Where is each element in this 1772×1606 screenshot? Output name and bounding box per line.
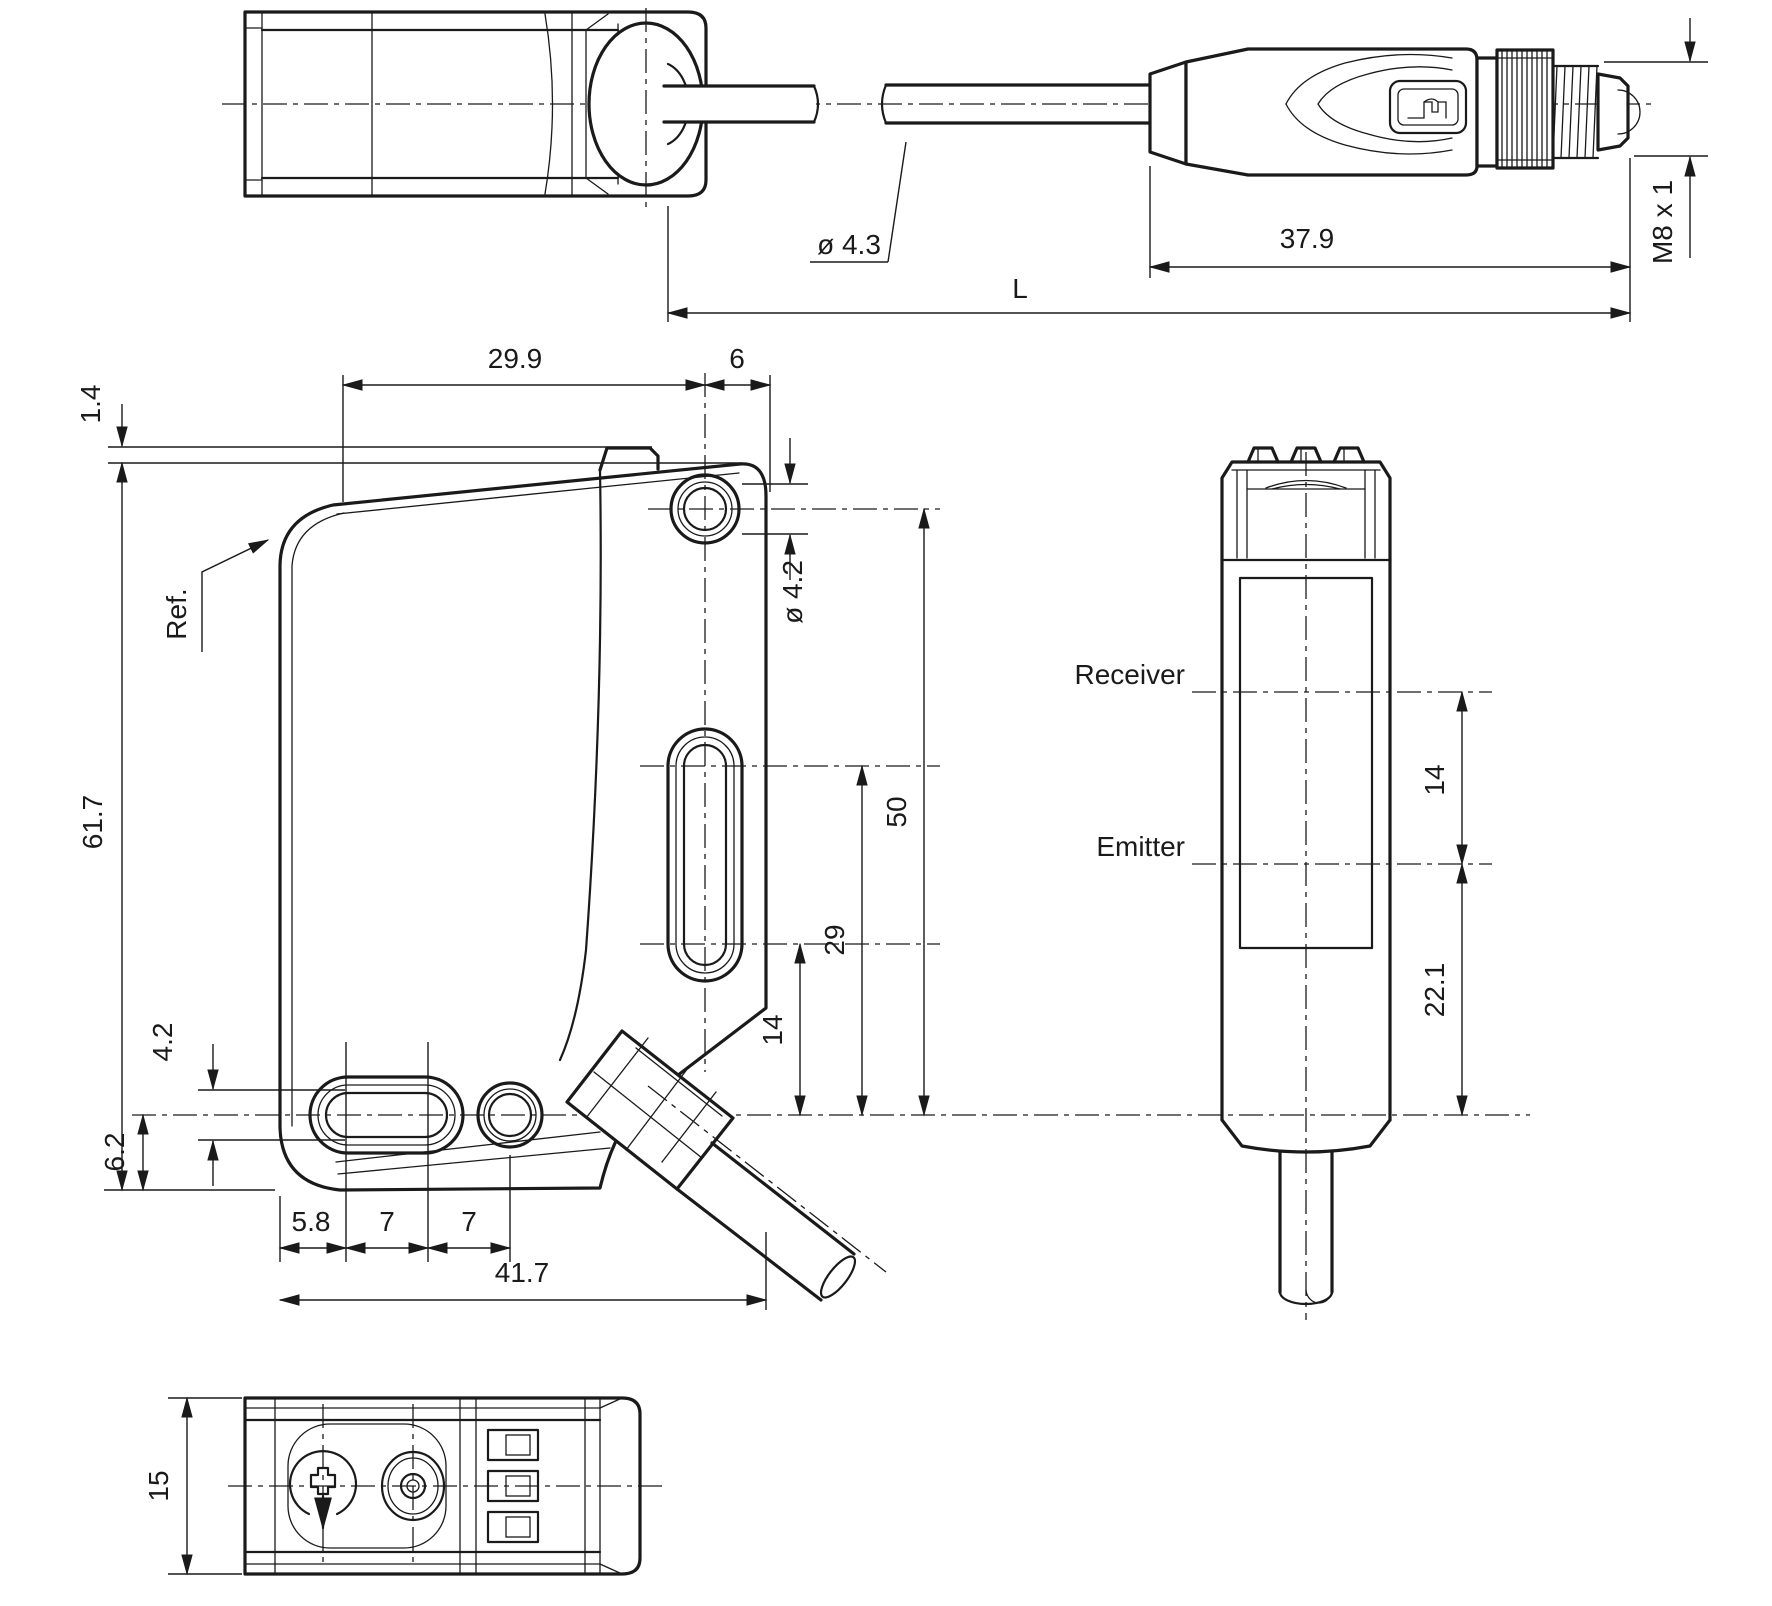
dim-slot-top-height: 29	[819, 924, 850, 955]
front-face-edge-curve	[560, 470, 601, 1060]
thread-section	[1553, 66, 1598, 158]
connector-tip	[1598, 74, 1628, 150]
dim-depth: 15	[143, 1470, 174, 1501]
dim-total-length: L	[1012, 273, 1028, 304]
front-left-inner-line	[292, 513, 344, 1126]
knurled-nut	[1497, 50, 1553, 168]
front-top-dimensions: 29.9 6	[343, 343, 770, 502]
front-right-dimensions: ø 4.2 14 29 50	[742, 438, 924, 1115]
label-emitter: Emitter	[1096, 831, 1185, 862]
dim-total-height: 61.7	[77, 795, 108, 850]
dim-thread-spec: M8 x 1	[1647, 180, 1678, 264]
ref-leader: Ref.	[161, 540, 268, 652]
dim-connector-length: 37.9	[1280, 223, 1335, 254]
sensor-dimensional-drawing: ø 4.3 37.9 L M8 x 1	[0, 0, 1772, 1606]
bottom-view-dimension: 15	[143, 1398, 242, 1574]
front-top-tab	[600, 448, 658, 470]
front-bottom-dimensions: 5.8 7 7 41.7	[280, 1042, 766, 1310]
side-view-sensor-face: Receiver Emitter 14 22.1	[1075, 448, 1492, 1320]
dim-slot-bottom-height: 14	[757, 1014, 788, 1045]
dim-chain-right: 7	[461, 1206, 477, 1237]
front-view-sensor-profile: Ref. 29.9 6 1.4 61.7 4.2	[75, 343, 1530, 1310]
dim-emitter-bottom: 22.1	[1419, 963, 1450, 1018]
dim-tab-height: 1.4	[75, 385, 106, 424]
dim-hole-edge-offset: 6	[729, 343, 745, 374]
side-view-dimensions: 14 22.1	[1419, 692, 1462, 1115]
dim-chain-left: 5.8	[292, 1206, 331, 1237]
dim-cable-diameter: ø 4.3	[817, 229, 881, 260]
label-reference: Ref.	[161, 588, 192, 639]
dim-chain-mid: 7	[379, 1206, 395, 1237]
cable-stub	[664, 86, 818, 122]
front-cable-boss	[567, 1031, 886, 1302]
connector-neck	[1477, 58, 1497, 166]
dim-total-width: 41.7	[495, 1257, 550, 1288]
front-top-inner-line	[337, 473, 739, 514]
front-body-outline	[280, 464, 766, 1190]
top-view-sensor-cable-assembly: ø 4.3 37.9 L M8 x 1	[222, 8, 1708, 322]
dim-top-hole-offset: 29.9	[488, 343, 543, 374]
m8-connector	[1150, 49, 1640, 175]
dim-hole-diameter: ø 4.2	[777, 560, 808, 624]
bottom-view-control-face: 15	[143, 1398, 668, 1574]
dimensional-drawing-page: ø 4.3 37.9 L M8 x 1	[0, 0, 1772, 1606]
label-receiver: Receiver	[1075, 659, 1185, 690]
dim-slot-width: 4.2	[147, 1023, 178, 1062]
dim-axis-bottom-offset: 6.2	[99, 1133, 130, 1172]
connector-ferrule	[1150, 62, 1186, 164]
dim-optic-spacing: 14	[1419, 764, 1450, 795]
dim-hole-height: 50	[881, 796, 912, 827]
